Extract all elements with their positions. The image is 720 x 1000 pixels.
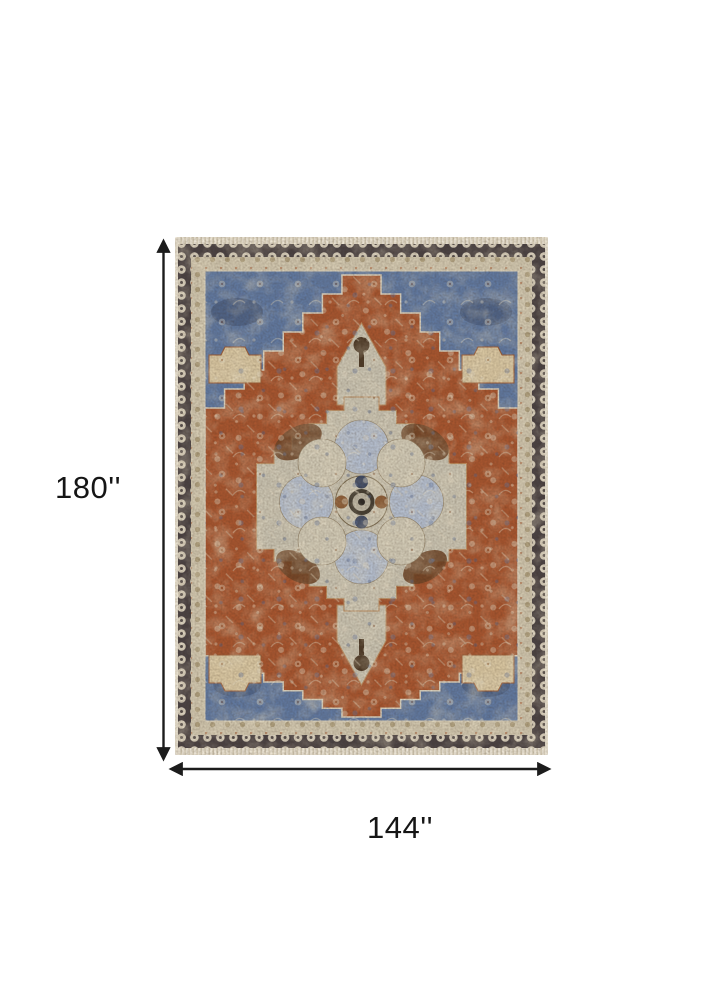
texture-overlay	[175, 237, 548, 755]
rug-dimension-diagram: 180'' 144''	[0, 0, 720, 1000]
rug-image	[175, 237, 548, 755]
height-dimension-label: 180''	[46, 470, 130, 506]
width-dimension-label: 144''	[352, 810, 448, 846]
